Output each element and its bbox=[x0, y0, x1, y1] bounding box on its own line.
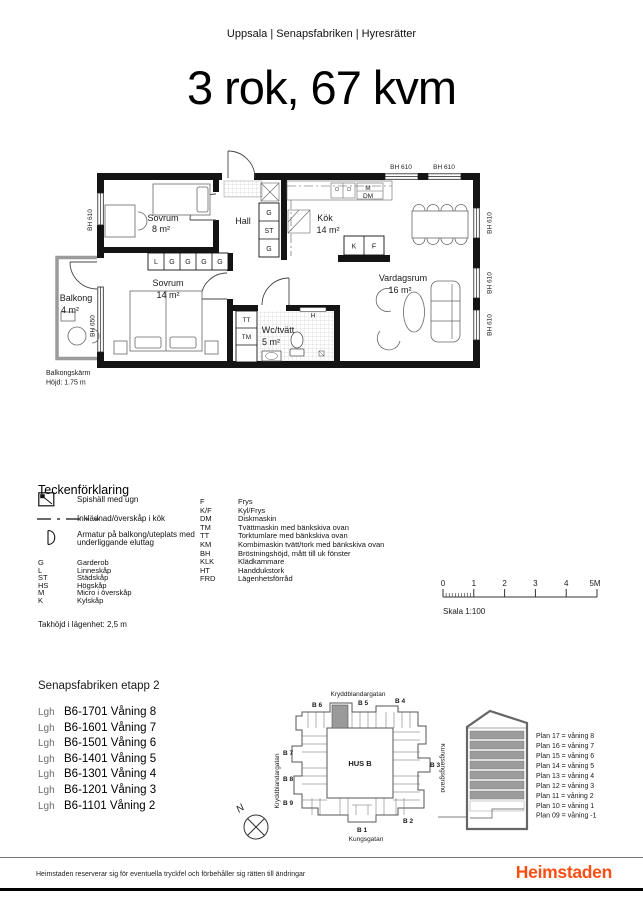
apartment-prefix: Lgh bbox=[38, 706, 64, 721]
entrance-b1: B 1 bbox=[357, 827, 368, 834]
bh-label-top-2: BH 610 bbox=[433, 164, 455, 171]
abbr: K bbox=[38, 597, 77, 605]
apartment-id: B6-1601 bbox=[64, 722, 107, 734]
breadcrumb: Uppsala | Senapsfabriken | Hyresrätter bbox=[0, 28, 643, 40]
floor-label: Plan 15 = våning 6 bbox=[536, 752, 594, 760]
apartment-id: B6-1501 bbox=[64, 737, 107, 749]
balcony-screen-note-2: Höjd: 1.75 m bbox=[46, 380, 86, 387]
apartment-prefix: Lgh bbox=[38, 753, 64, 768]
heimstaden-logo: Heimstaden bbox=[516, 862, 612, 883]
stove-icon bbox=[38, 492, 55, 507]
kitchen-fittings: M DM K F bbox=[287, 181, 392, 256]
room-area-wc: 5 m² bbox=[262, 337, 280, 347]
room-area-sovrum8: 8 m² bbox=[152, 224, 170, 234]
abbr: M bbox=[38, 589, 77, 597]
site-map: B 6 B 5 B 4 B 7 B 8 B 9 B 3 B 2 B 1 HUS … bbox=[230, 685, 445, 850]
room-area-sovrum14: 14 m² bbox=[156, 290, 179, 300]
street-left: Kryddblandargatan bbox=[274, 753, 281, 808]
room-area-kok: 14 m² bbox=[316, 225, 339, 235]
balcony-screen-note-1: Balkongskärm bbox=[46, 370, 91, 377]
scale-label: Skala 1:100 bbox=[443, 607, 486, 616]
room-name-wc: Wc/tvätt bbox=[262, 325, 295, 335]
floor-label: Plan 11 = våning 2 bbox=[536, 792, 594, 800]
apartment-row: LghB6-1401 Våning 5 bbox=[38, 752, 156, 768]
apartment-floor: Våning 4 bbox=[111, 768, 156, 780]
apartment-row: LghB6-1501 Våning 6 bbox=[38, 736, 156, 752]
apartment-id: B6-1301 bbox=[64, 768, 107, 780]
footer-disclaimer: Heimstaden reserverar sig för eventuella… bbox=[36, 871, 305, 878]
bh-label-right-1: BH 610 bbox=[487, 212, 494, 234]
room-name-hall: Hall bbox=[235, 216, 251, 226]
floor-label: Plan 16 = våning 7 bbox=[536, 742, 594, 750]
room-area-balkong: 4 m² bbox=[61, 305, 79, 315]
abbr-desc: Kylskåp bbox=[77, 596, 103, 605]
floor-label: Plan 12 = våning 3 bbox=[536, 782, 594, 790]
entrance-b5: B 5 bbox=[358, 700, 369, 707]
listing-title: Senapsfabriken etapp 2 bbox=[38, 680, 159, 692]
elevation-diagram: Plan 17 = våning 8 Plan 16 = våning 7 Pl… bbox=[430, 695, 643, 845]
legend-lamp-label: Armatur på balkong/uteplats med underlig… bbox=[77, 531, 197, 548]
scale-bar: 0 1 2 3 4 5M Skala 1:100 bbox=[435, 575, 635, 625]
closet-label: L bbox=[154, 259, 158, 266]
closet-label: ST bbox=[265, 228, 275, 235]
apartment-list: LghB6-1701 Våning 8 LghB6-1601 Våning 7 … bbox=[38, 705, 156, 814]
footer-divider bbox=[0, 857, 643, 858]
legend-cladding-label: Inklädnad/överskåp i kök bbox=[77, 514, 165, 523]
towel-dryer-label: H bbox=[311, 313, 316, 320]
apartment-floor: Våning 7 bbox=[111, 722, 156, 734]
legend-abbrev-right: FFrys K/FKyl/Frys DMDiskmaskin TMTvättma… bbox=[200, 498, 384, 584]
apartment-floor: Våning 2 bbox=[110, 800, 155, 812]
abbr-desc: Lägenhetsförråd bbox=[238, 574, 293, 583]
entrance-b9: B 9 bbox=[283, 800, 294, 807]
abbr: FRD bbox=[200, 575, 238, 584]
entrance-b6: B 6 bbox=[312, 702, 323, 709]
apartment-floor: Våning 6 bbox=[111, 737, 156, 749]
legend-stove-label: Spishäll med ugn bbox=[77, 495, 138, 504]
floor-label: Plan 14 = våning 5 bbox=[536, 762, 594, 770]
street-bottom: Kungsgatan bbox=[349, 836, 384, 843]
apartment-id: B6-1201 bbox=[64, 784, 107, 796]
entrance-b2: B 2 bbox=[403, 818, 414, 825]
fridge-label: K bbox=[352, 244, 357, 251]
apartment-floor: Våning 8 bbox=[111, 706, 156, 718]
bh-label-left: BH 610 bbox=[87, 209, 94, 231]
entrance-b4: B 4 bbox=[395, 698, 406, 705]
closet-label: G bbox=[201, 259, 206, 266]
apartment-prefix: Lgh bbox=[38, 800, 64, 815]
room-name-kok: Kök bbox=[317, 213, 333, 223]
scale-tick: 1 bbox=[472, 579, 477, 588]
closet-label: G bbox=[169, 259, 174, 266]
apartment-prefix: Lgh bbox=[38, 768, 64, 783]
apartment-row: LghB6-1201 Våning 3 bbox=[38, 783, 156, 799]
street-top: Kryddblandargatan bbox=[331, 691, 386, 698]
room-area-vardagsrum: 16 m² bbox=[388, 285, 411, 295]
bh-label-right-3: BH 610 bbox=[487, 314, 494, 336]
apartment-id: B6-1101 bbox=[64, 800, 107, 812]
floor-label: Plan 10 = våning 1 bbox=[536, 802, 594, 810]
bh-label-balcony: BH 650 bbox=[90, 315, 97, 337]
bh-label-right-2: BH 610 bbox=[487, 272, 494, 294]
scale-tick: 0 bbox=[441, 579, 446, 588]
footer-bottom-bar bbox=[0, 888, 643, 891]
scale-tick: 3 bbox=[533, 579, 538, 588]
floor-label: Plan 17 = våning 8 bbox=[536, 732, 594, 740]
apartment-id: B6-1701 bbox=[64, 706, 107, 718]
compass-icon: N bbox=[234, 802, 268, 839]
scale-tick: 2 bbox=[502, 579, 507, 588]
floor-labels: Plan 17 = våning 8 Plan 16 = våning 7 Pl… bbox=[536, 732, 597, 820]
apartment-id: B6-1401 bbox=[64, 753, 107, 765]
bh-label-top-1: BH 610 bbox=[390, 164, 412, 171]
room-name-balkong: Balkong bbox=[60, 293, 93, 303]
apartment-row: LghB6-1301 Våning 4 bbox=[38, 767, 156, 783]
page: Uppsala | Senapsfabriken | Hyresrätter 3… bbox=[0, 0, 643, 900]
dishwasher-label: DM bbox=[363, 193, 373, 200]
scale-tick: 4 bbox=[564, 579, 569, 588]
lamp-d-icon bbox=[46, 529, 59, 546]
washer-label: TM bbox=[242, 334, 251, 341]
floor-label: Plan 13 = våning 4 bbox=[536, 772, 594, 780]
room-name-vardagsrum: Vardagsrum bbox=[379, 273, 427, 283]
closet-label: G bbox=[217, 259, 222, 266]
legend-abbrev-left: GGarderob LLinneskåp STStädskåp HSHögskå… bbox=[38, 559, 132, 605]
apartment-floor: Våning 5 bbox=[111, 753, 156, 765]
apartment-prefix: Lgh bbox=[38, 722, 64, 737]
closet-label: G bbox=[185, 259, 190, 266]
building-label: HUS B bbox=[348, 759, 372, 768]
apartment-prefix: Lgh bbox=[38, 784, 64, 799]
abbr: G bbox=[38, 559, 77, 567]
apartment-floor: Våning 3 bbox=[111, 784, 156, 796]
closet-label: G bbox=[266, 210, 271, 217]
highlighted-apartment bbox=[332, 705, 348, 728]
entrance-b7: B 7 bbox=[283, 750, 294, 757]
scale-tick: 5M bbox=[589, 579, 600, 588]
apartment-row: LghB6-1101 Våning 2 bbox=[38, 799, 156, 815]
apartment-prefix: Lgh bbox=[38, 737, 64, 752]
page-title: 3 rok, 67 kvm bbox=[0, 60, 643, 115]
building-section bbox=[438, 711, 527, 829]
entry-mat bbox=[224, 181, 262, 197]
room-name-sovrum8: Sovrum bbox=[147, 213, 178, 223]
entrance-b8: B 8 bbox=[283, 776, 294, 783]
freezer-label: F bbox=[372, 244, 376, 251]
floorplan: L G G G G G ST G M DM bbox=[0, 140, 643, 402]
room-name-sovrum14: Sovrum bbox=[152, 278, 183, 288]
dryer-label: TT bbox=[243, 317, 251, 324]
compass-north-label: N bbox=[234, 802, 247, 816]
apartment-row: LghB6-1701 Våning 8 bbox=[38, 705, 156, 721]
floor-label: Plan 09 = våning -1 bbox=[536, 812, 597, 820]
closets-bedroom: L G G G G bbox=[148, 253, 228, 270]
apartment-row: LghB6-1601 Våning 7 bbox=[38, 721, 156, 737]
closet-label: G bbox=[266, 246, 271, 253]
ceiling-height-note: Takhöjd i lägenhet: 2,5 m bbox=[38, 620, 127, 629]
